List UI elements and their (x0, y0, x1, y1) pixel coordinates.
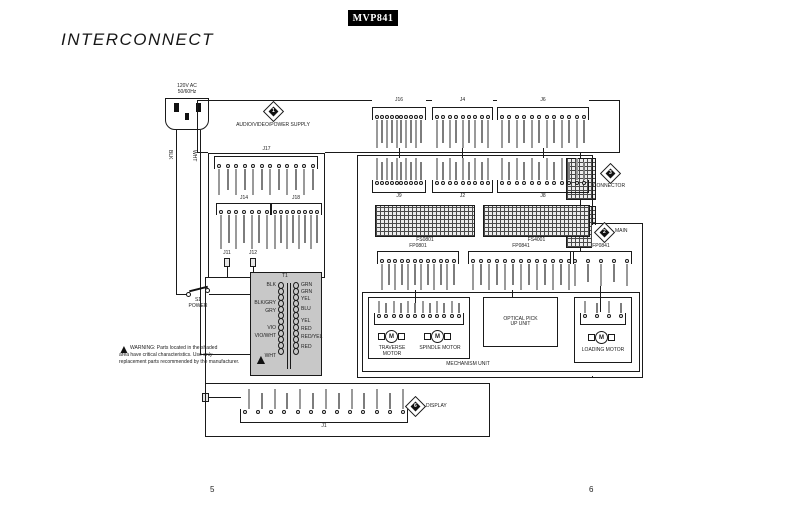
pin-wire-label (415, 158, 417, 180)
pin-icon (552, 115, 556, 119)
primary-wire-label: VIO (251, 326, 276, 332)
pin-wire-label (516, 158, 518, 180)
pin-icon (426, 259, 430, 263)
pin-icon (404, 181, 408, 185)
pin-wire-label (274, 389, 276, 409)
secondary-wire-label: RED (301, 345, 321, 351)
pin-wire-label (312, 169, 314, 190)
pin-icon (448, 115, 452, 119)
secondary-wire-label: YEL (301, 297, 321, 303)
connector-j8 (497, 180, 589, 193)
pin-wire-label (280, 215, 282, 243)
pin-icon (607, 314, 611, 318)
pin-wire-label (376, 120, 378, 148)
pin-icon (413, 314, 417, 318)
pin-icon (552, 181, 556, 185)
connector-label: J9 (372, 194, 426, 200)
pin-icon (582, 181, 586, 185)
wire-label-strip (497, 120, 589, 148)
pin-wire-label (523, 120, 525, 143)
display-board-label: DISPLAY (426, 404, 447, 410)
connector-label: J16 (372, 98, 426, 104)
wire-label-strip (432, 120, 493, 148)
pin-wire-label (220, 215, 222, 249)
wire-label-blk: BLK (167, 150, 173, 159)
pin-icon (297, 210, 301, 214)
pin-wire-label (376, 389, 378, 409)
pin-icon (377, 314, 381, 318)
pin-icon (385, 115, 389, 119)
pin-wire-label (261, 393, 263, 409)
pin-icon (414, 115, 418, 119)
connector-j12 (250, 258, 256, 267)
page-number-right: 6 (589, 485, 593, 494)
pin-wire-label (620, 303, 622, 313)
pin-wire-label (299, 389, 301, 409)
connector-j2 (432, 180, 493, 193)
pin-icon (399, 115, 403, 119)
transformer-ref: T1 (282, 274, 288, 280)
pin-icon (380, 115, 384, 119)
pin-wire-label (235, 169, 237, 195)
coil-turn-icon (293, 348, 299, 355)
pin-wire-label (553, 120, 555, 143)
pin-wire-label (576, 158, 578, 180)
pin-wire-label (472, 264, 474, 290)
pin-wire-label (536, 264, 538, 290)
pin-wire-label (446, 264, 448, 290)
pin-wire-label (583, 120, 585, 143)
pin-icon (217, 164, 221, 168)
pin-wire-label (303, 169, 305, 195)
pin-icon (380, 181, 384, 185)
spindle-motor-label: SPINDLE MOTOR (418, 346, 462, 352)
pin-wire-label (587, 264, 589, 282)
pin-icon (279, 210, 283, 214)
wire (205, 277, 228, 278)
pin-icon (560, 115, 564, 119)
pin-icon (545, 181, 549, 185)
pin-icon (448, 181, 452, 185)
connector-label: J6 (497, 98, 589, 104)
transformer-primary-coil-icon (278, 283, 284, 355)
pin-wire-label (410, 162, 412, 180)
pin-icon (227, 210, 231, 214)
pin-wire-label (304, 215, 306, 243)
pin-wire-label (261, 169, 263, 190)
pin-icon (452, 259, 456, 263)
connector-label: J4 (432, 98, 493, 104)
loading-motor-label: LOADING MOTOR (574, 348, 632, 354)
pin-icon (454, 115, 458, 119)
secondary-wire-label: RED (301, 327, 321, 333)
pin-wire-label (442, 162, 444, 180)
ribbon-connector-fs4001 (483, 205, 590, 237)
pin-icon (243, 410, 247, 414)
pin-icon (551, 259, 555, 263)
pin-wire-label (481, 120, 483, 143)
pin-wire-label (449, 158, 451, 180)
pin-icon (599, 259, 603, 263)
wire (209, 294, 252, 295)
coil-turn-icon (278, 348, 284, 355)
pin-icon (380, 259, 384, 263)
pin-icon (265, 210, 269, 214)
pin-icon (543, 259, 547, 263)
pin-wire-label (520, 264, 522, 290)
pin-wire-label (410, 120, 412, 143)
pin-icon (390, 181, 394, 185)
pin-icon (619, 314, 623, 318)
pin-wire-label (568, 162, 570, 180)
pin-icon (442, 314, 446, 318)
pin-icon (257, 210, 261, 214)
pin-wire-label (449, 120, 451, 148)
pin-icon (439, 259, 443, 263)
pin-icon (348, 410, 352, 414)
pin-wire-label (235, 215, 237, 249)
pin-wire-label (462, 158, 464, 180)
pin-icon (393, 259, 397, 263)
pin-icon (435, 115, 439, 119)
pin-wire-label (436, 120, 438, 148)
primary-wire-label: GRY (251, 309, 276, 315)
pin-icon (291, 210, 295, 214)
pin-wire-label (496, 264, 498, 285)
pin-icon (537, 115, 541, 119)
pin-icon (226, 164, 230, 168)
connector-fp0801 (377, 251, 459, 264)
pin-icon (375, 115, 379, 119)
secondary-wire-label: RED/YEL (301, 335, 321, 341)
pin-icon (527, 259, 531, 263)
pin-icon (399, 181, 403, 185)
connector-j16 (372, 107, 426, 120)
pin-wire-label (248, 389, 250, 409)
pin-wire-label (436, 301, 438, 313)
pin-icon (471, 259, 475, 263)
pin-wire-label (427, 264, 429, 285)
connector-label: J11 (220, 251, 234, 257)
pin-wire-label (338, 393, 340, 409)
pin-wire-label (298, 215, 300, 249)
mechanism-connector (580, 313, 626, 325)
pin-wire-label (310, 215, 312, 249)
pin-wire-label (544, 264, 546, 285)
pin-icon (625, 259, 629, 263)
traverse-motor-icon: M (378, 330, 405, 343)
pin-icon (515, 181, 519, 185)
pin-wire-label (458, 303, 460, 313)
pin-wire-label (405, 158, 407, 180)
pin-wire-label (508, 120, 510, 143)
pin-icon (612, 259, 616, 263)
pin-wire-label (474, 120, 476, 148)
pin-icon (586, 259, 590, 263)
spindle-motor-icon: M (424, 330, 451, 343)
pin-icon (395, 181, 399, 185)
pin-icon (500, 181, 504, 185)
pin-icon (441, 115, 445, 119)
pin-icon (309, 210, 313, 214)
pin-icon (530, 115, 534, 119)
page-title: INTERCONNECT (61, 30, 214, 50)
pin-icon (530, 181, 534, 185)
mechanism-connector (374, 313, 464, 325)
pin-wire-label (538, 162, 540, 180)
primary-wire-label: BLK (251, 283, 276, 289)
pin-icon (454, 181, 458, 185)
connector-j1 (240, 409, 408, 423)
pin-wire-label (325, 389, 327, 409)
power-supply-board-label: AUDIO/VIDEO/POWER SUPPLY (212, 123, 334, 129)
connector-j14 (216, 203, 272, 215)
pin-wire-label (286, 215, 288, 249)
pin-icon (303, 210, 307, 214)
pin-icon (522, 181, 526, 185)
pin-wire-label (501, 120, 503, 148)
pin-wire-label (560, 264, 562, 285)
pin-wire-label (552, 264, 554, 290)
pin-icon (432, 259, 436, 263)
connector-label: J12 (246, 251, 260, 257)
wire-label-strip (432, 158, 493, 180)
pin-wire-label (385, 303, 387, 313)
pin-icon (250, 210, 254, 214)
pin-wire-label (396, 120, 398, 148)
warning-text-line3: replacement parts recommended by the man… (119, 360, 239, 366)
pin-icon (480, 181, 484, 185)
pin-icon (400, 259, 404, 263)
pin-icon (500, 115, 504, 119)
pin-wire-label (420, 162, 422, 180)
pin-wire-label (400, 162, 402, 180)
pin-icon (461, 115, 465, 119)
connector-fp0841b (570, 251, 632, 264)
pin-icon (409, 115, 413, 119)
pin-icon (486, 115, 490, 119)
pin-icon (390, 115, 394, 119)
pin-icon (461, 181, 465, 185)
pin-wire-label (436, 158, 438, 180)
pin-wire-label (243, 215, 245, 243)
pin-wire-label (553, 162, 555, 180)
pin-wire-label (546, 158, 548, 180)
pin-wire-label (378, 301, 380, 313)
wire-label-strip (214, 169, 318, 195)
connector-label: J14 (216, 196, 272, 202)
pin-wire-label (400, 120, 402, 143)
pin-icon (560, 181, 564, 185)
pin-wire-label (401, 264, 403, 285)
pin-icon (302, 164, 306, 168)
pin-icon (522, 115, 526, 119)
pin-wire-label (480, 264, 482, 285)
pin-wire-label (228, 215, 230, 243)
pin-wire-label (429, 303, 431, 313)
wire (176, 130, 177, 294)
pin-icon (428, 314, 432, 318)
pin-icon (467, 181, 471, 185)
pin-wire-label (316, 215, 318, 243)
pin-icon (388, 410, 392, 414)
model-badge: MVP841 (348, 10, 398, 26)
pin-icon (404, 115, 408, 119)
pin-wire-label (487, 120, 489, 148)
pin-icon (395, 115, 399, 119)
pin-wire-label (442, 120, 444, 143)
ref-diamond-icon: 3 (600, 163, 621, 184)
pin-icon (285, 210, 289, 214)
wire-label-strip (570, 264, 632, 286)
optical-pickup-label: OPTICAL PICK UP UNIT (501, 317, 541, 328)
pin-icon (445, 259, 449, 263)
wire-label-strip (372, 120, 426, 148)
pin-wire-label (396, 158, 398, 180)
pin-icon (335, 410, 339, 414)
wire-label-strip (580, 301, 626, 313)
pin-icon (311, 164, 315, 168)
pin-icon (457, 314, 461, 318)
connector-label: FP0841 (570, 244, 632, 250)
wire (200, 130, 201, 354)
pin-wire-label (546, 120, 548, 148)
pin-wire-label (278, 169, 280, 190)
pin-icon (515, 115, 519, 119)
pin-icon (414, 181, 418, 185)
transformer-core-icon (287, 283, 288, 369)
pin-icon (384, 314, 388, 318)
pin-wire-label (523, 162, 525, 180)
wire-label-strip (497, 158, 589, 180)
pin-wire-label (574, 264, 576, 286)
pin-icon (479, 259, 483, 263)
loading-motor-icon: M (588, 331, 615, 344)
pin-wire-label (407, 264, 409, 290)
pin-icon (567, 115, 571, 119)
pin-wire-label (584, 301, 586, 313)
pin-wire-label (538, 120, 540, 143)
pin-icon (322, 410, 326, 414)
pin-icon (315, 210, 319, 214)
pin-wire-label (501, 158, 503, 180)
pin-wire-label (474, 158, 476, 180)
pin-wire-label (455, 120, 457, 143)
pin-wire-label (422, 301, 424, 313)
pin-icon (219, 210, 223, 214)
wire-label-strip (216, 215, 272, 249)
pin-icon (595, 314, 599, 318)
pin-wire-label (227, 169, 229, 190)
pin-icon (406, 314, 410, 318)
ribbon-connector-fs0801 (375, 205, 475, 237)
pin-wire-label (388, 264, 390, 285)
connector-j4 (432, 107, 493, 120)
pin-icon (507, 115, 511, 119)
pin-icon (537, 181, 541, 185)
pin-wire-label (561, 158, 563, 180)
pin-icon (467, 115, 471, 119)
pin-icon (277, 164, 281, 168)
wire-label-strip (374, 301, 464, 313)
pin-wire-label (420, 120, 422, 143)
pin-wire-label (440, 264, 442, 285)
pin-wire-label (405, 120, 407, 148)
pin-icon (256, 410, 260, 414)
pin-wire-label (481, 162, 483, 180)
pin-icon (387, 259, 391, 263)
pin-icon (583, 314, 587, 318)
plug-ground-pin-icon (185, 113, 189, 120)
pin-wire-label (576, 120, 578, 148)
pin-wire-label (269, 169, 271, 195)
pin-wire-label (414, 303, 416, 313)
secondary-wire-label: GRN (301, 290, 321, 296)
pin-icon (421, 314, 425, 318)
pin-icon (435, 181, 439, 185)
pin-icon (385, 181, 389, 185)
pin-wire-label (414, 264, 416, 285)
pin-icon (294, 164, 298, 168)
pin-wire-label (528, 264, 530, 285)
pin-icon (559, 259, 563, 263)
switch-name: POWER (184, 304, 212, 310)
pin-wire-label (312, 393, 314, 409)
pin-icon (567, 181, 571, 185)
primary-wire-label: VIO/WHT (251, 334, 276, 340)
pin-icon (575, 181, 579, 185)
wire-label-strip (468, 264, 574, 290)
pin-wire-label (583, 162, 585, 180)
pin-wire-label (561, 120, 563, 148)
pin-wire-label (363, 393, 365, 409)
pin-icon (473, 115, 477, 119)
transformer-core-icon (290, 283, 291, 369)
pin-wire-label (252, 169, 254, 195)
connector-j17 (214, 156, 318, 169)
pin-wire-label (512, 264, 514, 285)
pin-icon (273, 210, 277, 214)
connector-j6 (497, 107, 589, 120)
connector-j9 (372, 180, 426, 193)
pin-icon (409, 181, 413, 185)
pin-wire-label (453, 264, 455, 285)
pin-wire-label (504, 264, 506, 290)
pin-wire-label (218, 169, 220, 195)
connector-label: J1 (240, 424, 408, 430)
pin-icon (545, 115, 549, 119)
pin-wire-label (295, 169, 297, 190)
pin-icon (480, 115, 484, 119)
connector-label: J2 (432, 194, 493, 200)
warning-text-line2: area have critical characteristics. Use … (119, 353, 212, 359)
pin-icon (260, 164, 264, 168)
pin-wire-label (508, 162, 510, 180)
pin-icon (375, 181, 379, 185)
pin-icon (234, 164, 238, 168)
pin-icon (243, 164, 247, 168)
pin-icon (535, 259, 539, 263)
traverse-motor-label: TRAVERSE MOTOR (370, 346, 414, 357)
pin-icon (268, 164, 272, 168)
pin-wire-label (391, 162, 393, 180)
secondary-wire-label: BLU (301, 307, 321, 313)
pin-icon (487, 259, 491, 263)
pin-icon (399, 314, 403, 318)
pin-wire-label (274, 215, 276, 249)
pin-icon (406, 259, 410, 263)
pin-wire-label (400, 303, 402, 313)
